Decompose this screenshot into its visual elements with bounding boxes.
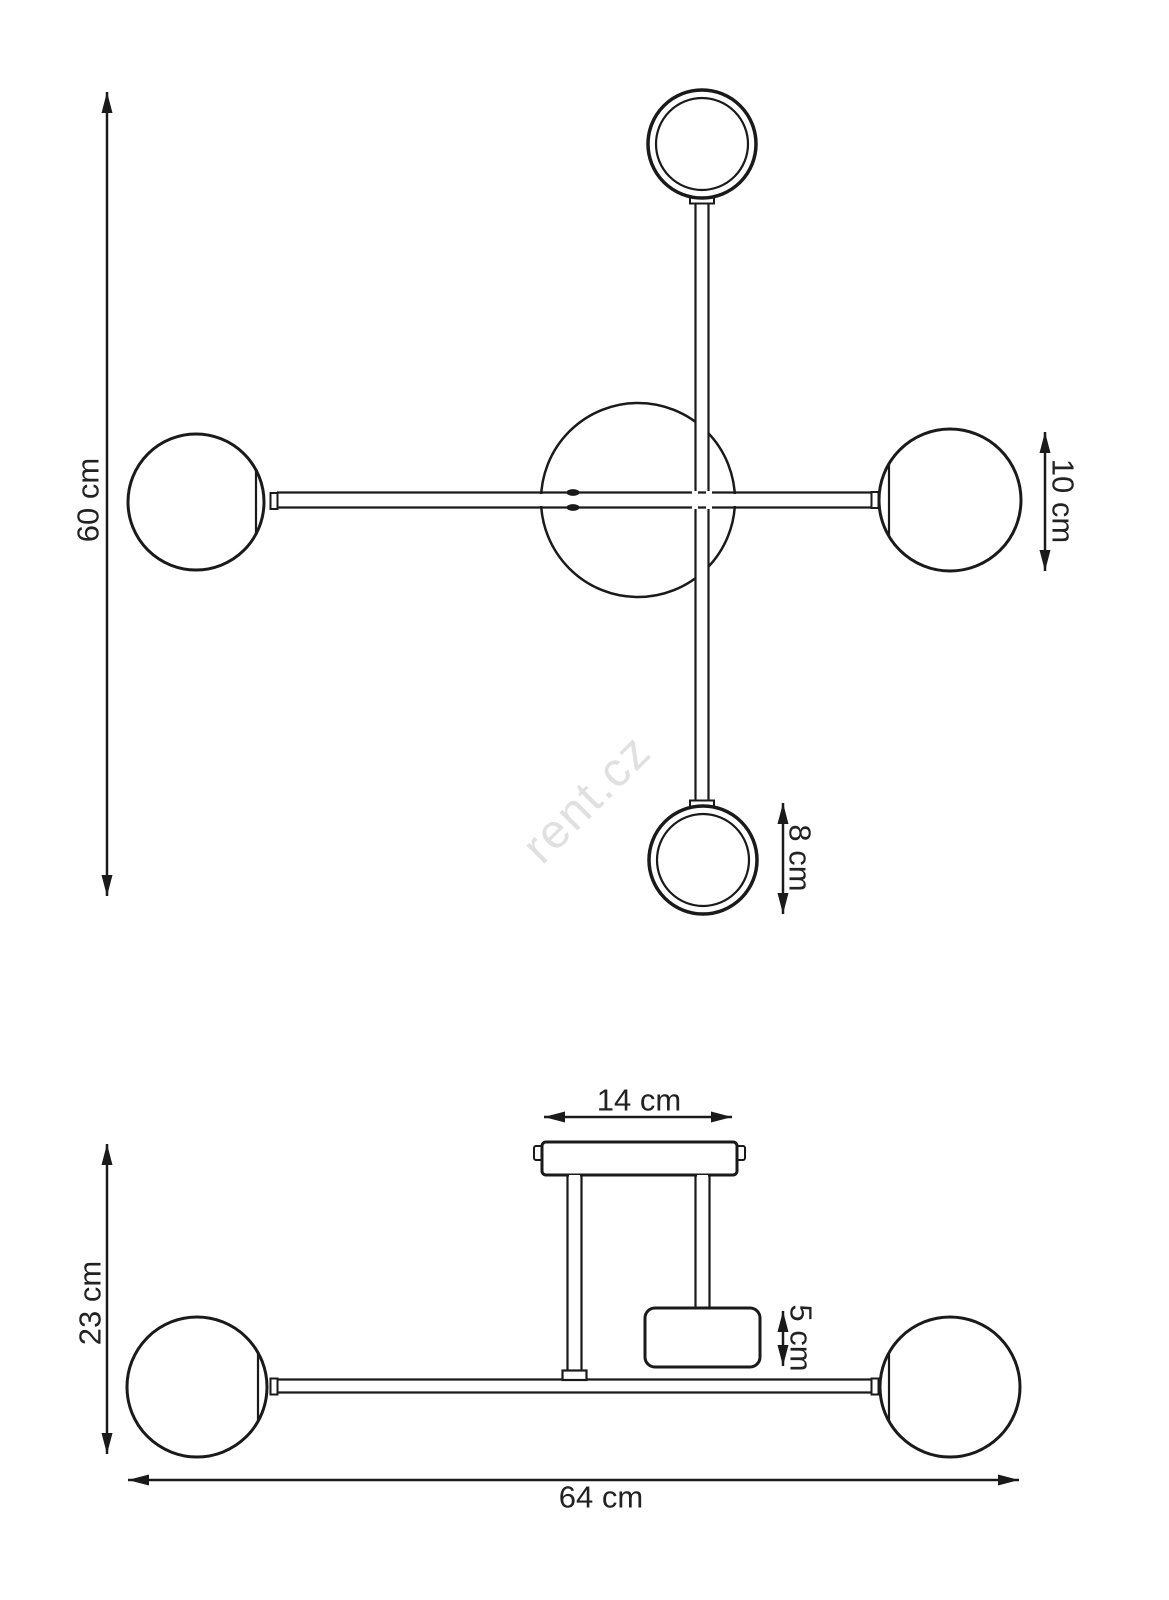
rod-screw-top (567, 489, 580, 496)
horizontal-rod (277, 489, 872, 511)
right-stem (696, 1175, 710, 1308)
right-globe-side-view (872, 1317, 1021, 1457)
dim-label-holder-height: 5 cm (786, 1304, 817, 1371)
top-ring (648, 90, 756, 198)
bottom-ring (649, 806, 757, 914)
dim-label-overall-height: 60 cm (73, 458, 104, 542)
vertical-rod (696, 202, 709, 804)
left-globe-side-view (127, 1317, 278, 1457)
side-view-drawing (107, 1117, 1020, 1480)
dim-label-ring-diameter: 8 cm (785, 824, 816, 891)
dim-label-globe-diameter: 10 cm (1048, 459, 1079, 543)
cross-bar (274, 1380, 872, 1393)
technical-drawing-page: 60 cm 10 cm 8 cm 14 cm 23 cm 5 cm 64 cm … (0, 0, 1169, 1600)
stem-joint (563, 1371, 587, 1381)
left-globe-top-view (128, 434, 278, 570)
dim-label-overall-width: 64 cm (559, 1482, 643, 1513)
dim-label-canopy-width: 14 cm (597, 1085, 681, 1116)
left-stem (568, 1175, 582, 1371)
rod-screw-bottom (567, 504, 580, 511)
lamp-holder (645, 1308, 760, 1367)
ceiling-canopy (534, 1142, 745, 1175)
dim-label-fixture-height: 23 cm (75, 1261, 106, 1345)
right-globe-top-view (872, 429, 1022, 571)
